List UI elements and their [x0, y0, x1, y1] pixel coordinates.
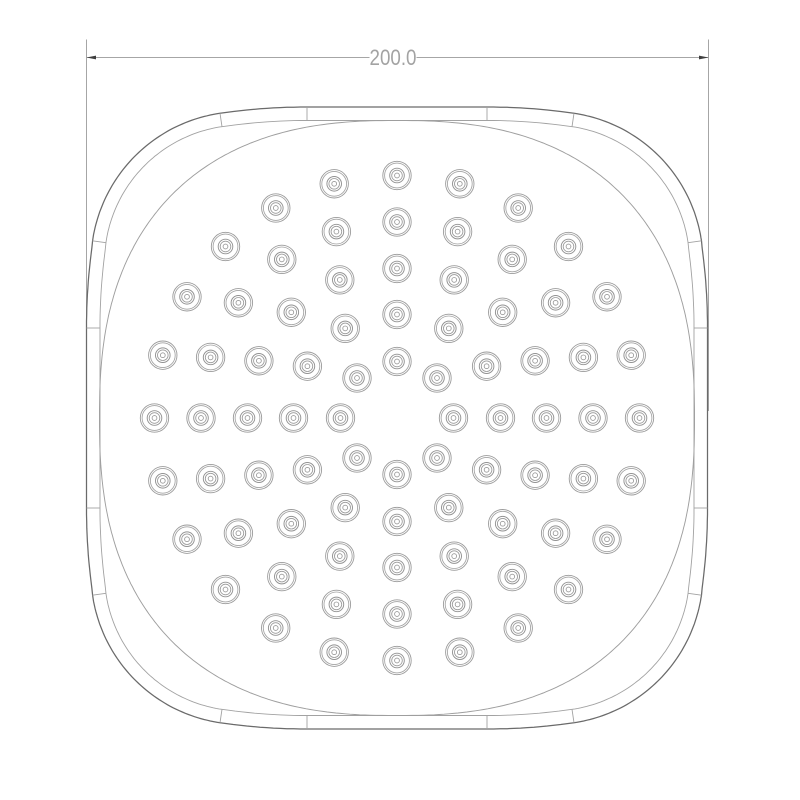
svg-text:200.0: 200.0: [370, 45, 417, 70]
